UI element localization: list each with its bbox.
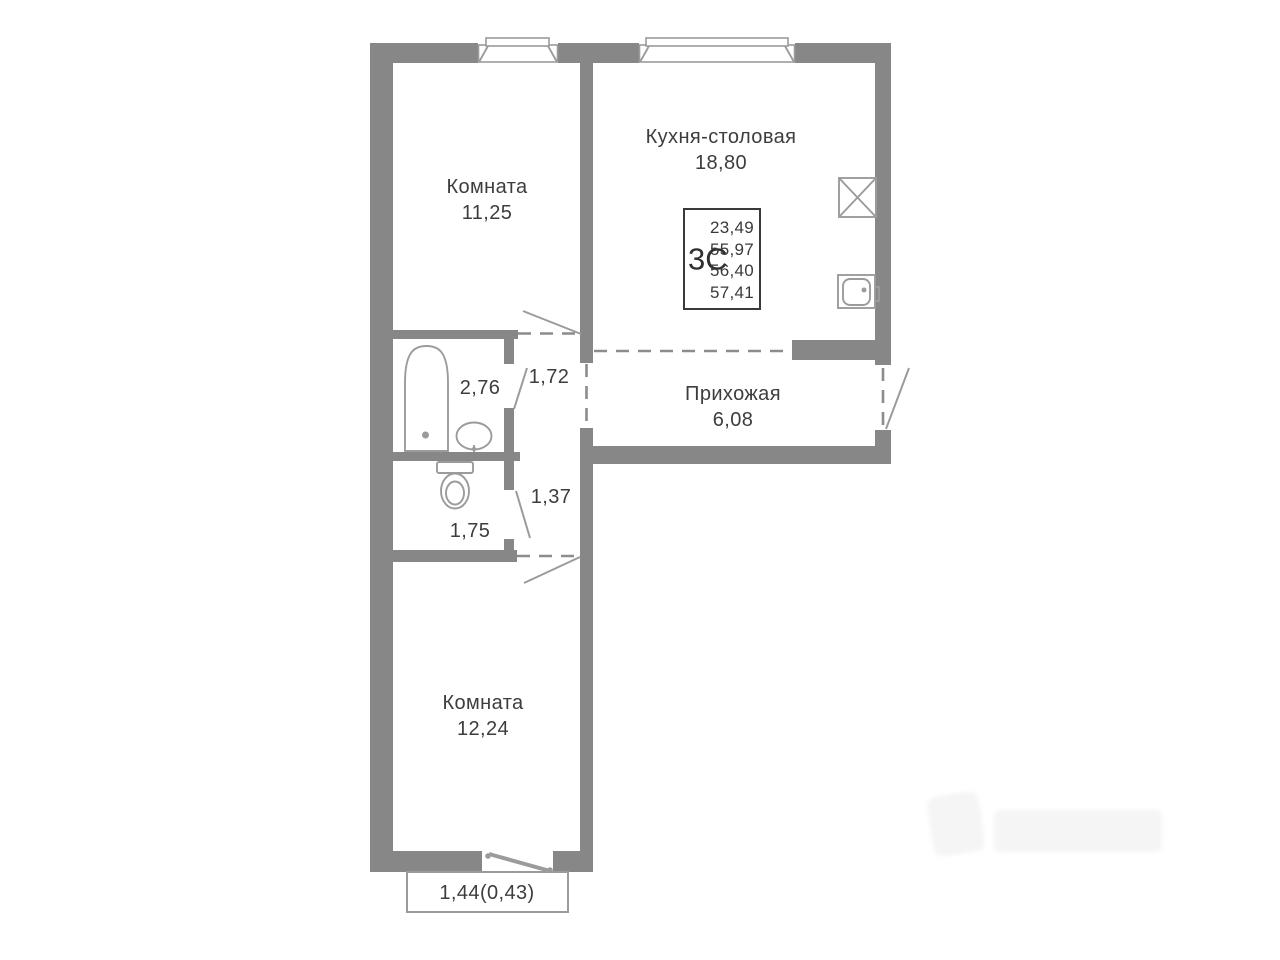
unit-spec-box: 3С 23,49 55,97 56,40 57,41: [683, 208, 761, 310]
label-wc: 1,75: [450, 518, 491, 544]
wall-top: [370, 43, 890, 63]
label-bedroom1: Комната 11,25: [446, 174, 527, 226]
wall-kitchen-hallway-stub: [792, 340, 875, 360]
door-swing-bedroom2: [524, 557, 580, 583]
wall-wc-bottom: [370, 550, 517, 562]
room-name: Прихожая: [685, 381, 781, 407]
wall-bathroom-wc-divider: [370, 452, 520, 461]
window-kitchen-icon: [639, 38, 795, 64]
room-area: 2,76: [460, 375, 501, 401]
door-swing-wc: [516, 491, 530, 538]
toilet-icon: [437, 462, 473, 509]
kitchen-sink-icon: [838, 275, 879, 308]
door-swing-entrance: [886, 368, 909, 429]
stove-icon: [839, 178, 876, 217]
label-kitchen: Кухня-столовая 18,80: [646, 124, 797, 176]
unit-area-value: 57,41: [710, 282, 754, 304]
label-bedroom2: Комната 12,24: [442, 690, 523, 742]
door-openings: [517, 334, 883, 557]
walls: [370, 43, 891, 872]
room-name: Комната: [442, 690, 523, 716]
room-name: Кухня-столовая: [646, 124, 797, 150]
room-area: 11,25: [446, 200, 527, 226]
unit-area-value: 55,97: [710, 239, 754, 261]
watermark: [994, 810, 1162, 852]
wall-spine-upper: [580, 43, 593, 363]
room-area: 1,44(0,43): [439, 880, 534, 906]
floor-plan-page: Комната 11,25 Кухня-столовая 18,80 Прихо…: [0, 0, 1280, 960]
bathroom-sink-icon: [457, 423, 492, 453]
wall-wc-right-upper: [504, 461, 514, 490]
room-area: 6,08: [685, 407, 781, 433]
wall-hallway-bottom: [580, 446, 890, 464]
wall-bedroom1-bottom: [370, 330, 518, 339]
room-area: 1,37: [531, 484, 572, 510]
room-area: 1,75: [450, 518, 491, 544]
unit-area-value: 23,49: [710, 217, 754, 239]
label-hallway: Прихожая 6,08: [685, 381, 781, 433]
wall-bedroom2-bottom-left: [370, 851, 482, 872]
room-area: 18,80: [646, 150, 797, 176]
bathtub-icon: [405, 346, 448, 451]
window-bedroom1-icon: [478, 38, 558, 64]
room-area: 12,24: [442, 716, 523, 742]
unit-areas: 23,49 55,97 56,40 57,41: [710, 217, 754, 303]
label-balcony: 1,44(0,43): [439, 880, 534, 906]
unit-area-value: 56,40: [710, 260, 754, 282]
wall-bathroom-right-upper: [504, 330, 514, 364]
watermark-logo-icon: [926, 791, 986, 858]
label-corridor-2: 1,37: [531, 484, 572, 510]
door-swing-bathroom: [514, 368, 527, 409]
wall-right-upper: [875, 43, 891, 365]
door-swing-bedroom1: [523, 311, 581, 334]
wall-bathroom-right-lower: [504, 408, 514, 453]
balcony-door-leaf: [489, 854, 550, 871]
room-name: Комната: [446, 174, 527, 200]
wall-spine-lower: [580, 428, 593, 872]
room-area: 1,72: [529, 364, 570, 390]
label-corridor-1: 1,72: [529, 364, 570, 390]
label-bathroom: 2,76: [460, 375, 501, 401]
wall-bedroom2-bottom-right: [553, 851, 593, 872]
